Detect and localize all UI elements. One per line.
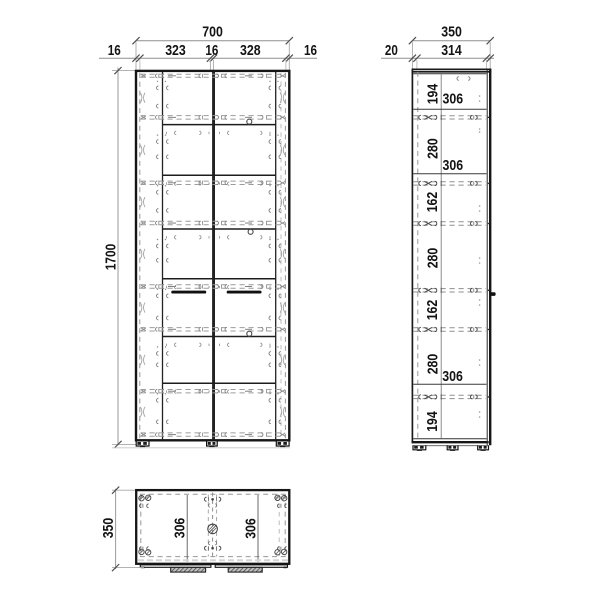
svg-text:280: 280 — [426, 354, 442, 375]
svg-text:306: 306 — [442, 369, 463, 385]
svg-text:323: 323 — [165, 43, 186, 59]
svg-text:306: 306 — [244, 518, 260, 539]
svg-text:280: 280 — [426, 248, 442, 269]
svg-text:314: 314 — [441, 43, 462, 59]
svg-text:306: 306 — [443, 91, 464, 107]
svg-text:306: 306 — [172, 518, 188, 539]
svg-text:20: 20 — [385, 43, 398, 59]
svg-text:194: 194 — [425, 411, 441, 432]
svg-text:162: 162 — [425, 192, 441, 213]
svg-text:16: 16 — [304, 43, 317, 59]
svg-text:700: 700 — [202, 25, 223, 41]
svg-text:350: 350 — [441, 25, 462, 41]
svg-text:162: 162 — [425, 300, 441, 321]
svg-text:280: 280 — [426, 138, 442, 159]
svg-text:306: 306 — [443, 158, 464, 174]
svg-text:350: 350 — [101, 518, 117, 539]
svg-text:1700: 1700 — [103, 244, 119, 270]
svg-text:194: 194 — [426, 84, 442, 105]
svg-text:16: 16 — [108, 43, 121, 59]
svg-text:16: 16 — [205, 43, 218, 59]
svg-text:328: 328 — [240, 43, 261, 59]
